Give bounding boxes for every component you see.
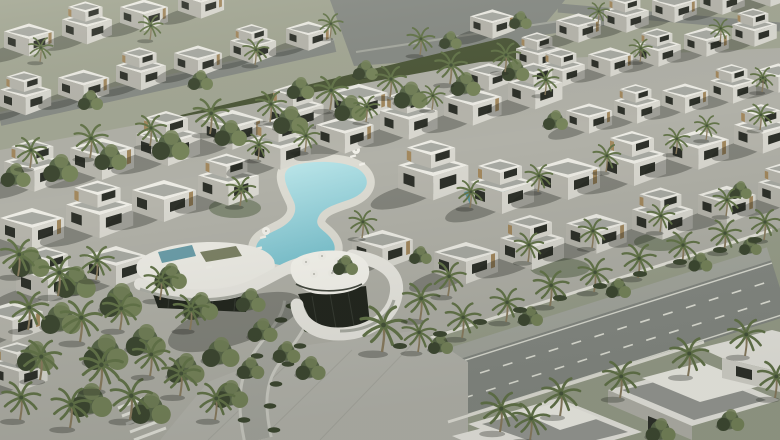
scene-svg [0,0,780,440]
aerial-render [0,0,780,440]
light-overlay [0,0,780,440]
